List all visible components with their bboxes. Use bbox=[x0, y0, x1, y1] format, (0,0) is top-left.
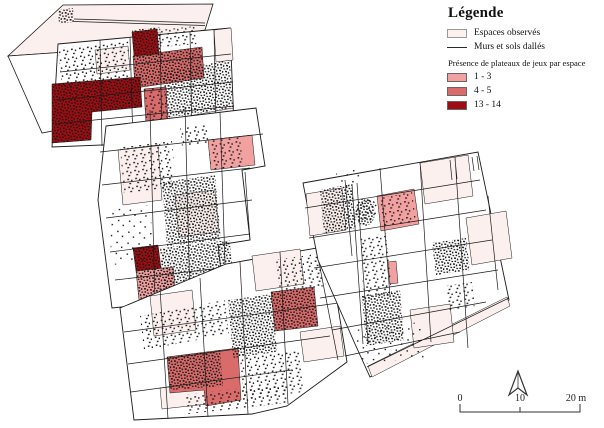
legend: Légende Espaces observés Murs et sols da… bbox=[447, 5, 603, 114]
legend-class-label: 13 - 14 bbox=[474, 100, 501, 110]
scale-tick-label: 10 bbox=[515, 393, 525, 404]
north-arrow-icon bbox=[509, 371, 527, 395]
legend-item-walls: Murs et sols dallés bbox=[447, 42, 603, 52]
site-plan-figure: 0 10 20 m Légende Espaces observés Murs … bbox=[0, 0, 604, 428]
scale-tick-label: 20 m bbox=[566, 393, 587, 404]
rubble-area bbox=[432, 238, 470, 275]
rubble-area bbox=[167, 350, 223, 390]
observed-room bbox=[420, 155, 473, 204]
legend-classes-title: Présence de plateaux de jeux par espace bbox=[448, 58, 603, 68]
legend-class-3: 13 - 14 bbox=[447, 100, 603, 110]
legend-item-label: Espaces observés bbox=[474, 28, 540, 38]
legend-class-2: 4 - 5 bbox=[447, 86, 603, 96]
rubble-area bbox=[380, 192, 416, 228]
legend-class-label: 1 - 3 bbox=[474, 72, 491, 82]
class-3-swatch bbox=[447, 101, 467, 110]
legend-class-label: 4 - 5 bbox=[474, 86, 491, 96]
observed-swatch bbox=[447, 29, 467, 38]
class-2-swatch bbox=[447, 87, 467, 96]
class-1-swatch bbox=[447, 73, 467, 82]
rubble-area bbox=[228, 294, 277, 358]
legend-item-label: Murs et sols dallés bbox=[474, 42, 545, 52]
rubble-area bbox=[132, 27, 162, 58]
rubble-area bbox=[208, 137, 243, 170]
legend-title: Légende bbox=[448, 5, 603, 22]
scale-bar: 0 10 20 m bbox=[458, 393, 587, 412]
rubble-area bbox=[358, 233, 392, 300]
wall-line-icon bbox=[447, 47, 467, 48]
rubble-area bbox=[446, 282, 475, 310]
legend-item-observed: Espaces observés bbox=[447, 28, 603, 38]
rubble-area bbox=[108, 205, 154, 265]
observed-room bbox=[214, 28, 233, 62]
observed-room bbox=[466, 211, 512, 265]
rubble-area bbox=[320, 184, 356, 234]
rubble-area bbox=[58, 8, 74, 24]
rubble-area bbox=[162, 175, 221, 246]
rubble-area bbox=[58, 40, 131, 87]
scale-tick-label: 0 bbox=[458, 393, 463, 404]
legend-class-1: 1 - 3 bbox=[447, 72, 603, 82]
